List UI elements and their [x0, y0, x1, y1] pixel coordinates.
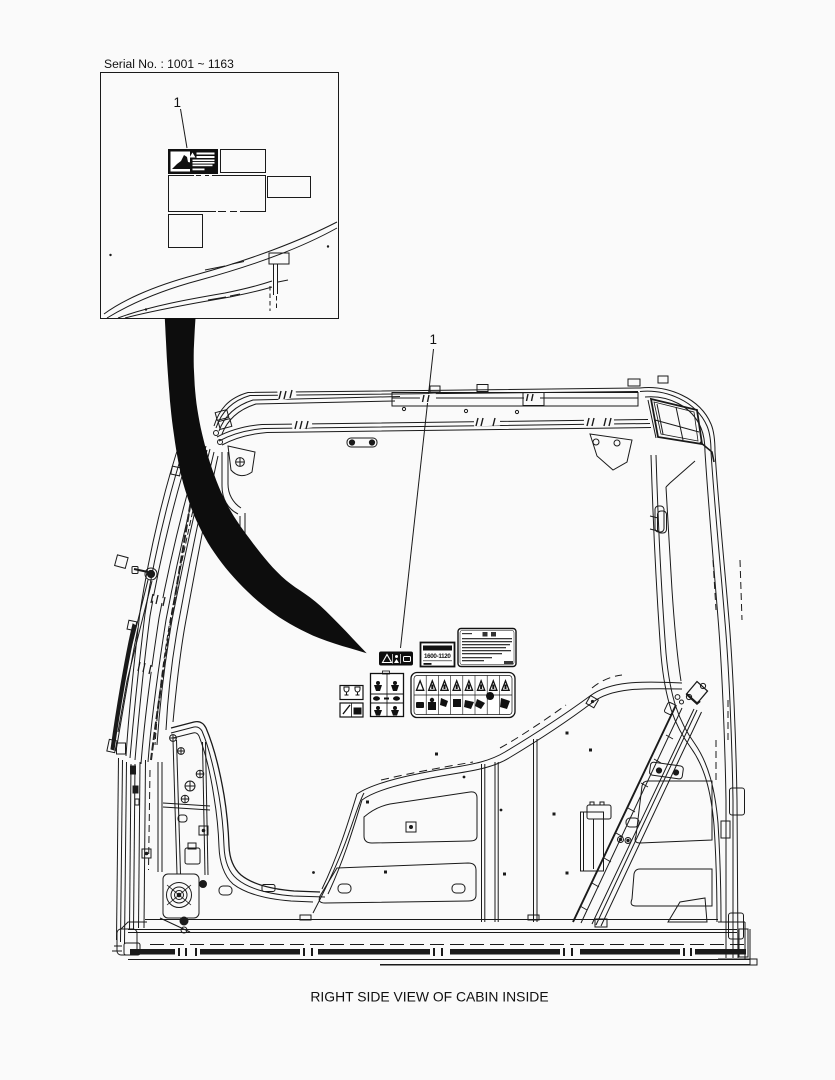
svg-text:1: 1 [174, 95, 182, 110]
svg-text:RIGHT SIDE VIEW OF CABIN INSID: RIGHT SIDE VIEW OF CABIN INSIDE [310, 989, 548, 1005]
svg-text:Serial No. : 1001 ~ 1163: Serial No. : 1001 ~ 1163 [104, 57, 234, 71]
svg-text:1600-1120: 1600-1120 [424, 653, 451, 660]
svg-text:1: 1 [430, 332, 438, 347]
